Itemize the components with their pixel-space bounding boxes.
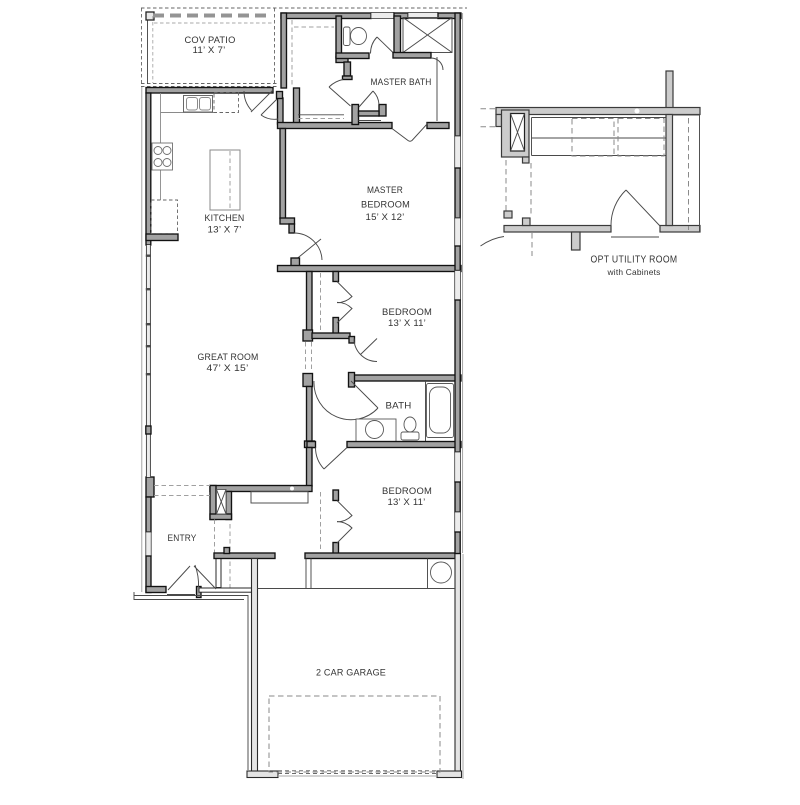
- svg-text:13’ X 7’: 13’ X 7’: [208, 225, 242, 236]
- svg-text:11’ X 7’: 11’ X 7’: [193, 45, 226, 56]
- svg-text:MASTER BATH: MASTER BATH: [371, 77, 432, 88]
- svg-text:BEDROOM: BEDROOM: [382, 486, 432, 497]
- svg-text:15’ X 12’: 15’ X 12’: [366, 212, 405, 223]
- svg-text:GREAT ROOM: GREAT ROOM: [198, 352, 259, 363]
- svg-text:with Cabinets: with Cabinets: [607, 267, 661, 277]
- svg-text:2 CAR GARAGE: 2 CAR GARAGE: [316, 668, 386, 679]
- svg-text:BEDROOM: BEDROOM: [361, 200, 410, 211]
- svg-text:13’ X 11’: 13’ X 11’: [388, 497, 426, 508]
- svg-text:BATH: BATH: [386, 401, 412, 412]
- svg-text:OPT UTILITY ROOM: OPT UTILITY ROOM: [591, 255, 678, 266]
- svg-text:47’ X 15’: 47’ X 15’: [207, 363, 249, 374]
- svg-text:BEDROOM: BEDROOM: [382, 307, 432, 318]
- svg-text:13’ X 11’: 13’ X 11’: [388, 318, 426, 329]
- svg-text:ENTRY: ENTRY: [168, 533, 197, 544]
- svg-text:KITCHEN: KITCHEN: [205, 213, 245, 224]
- svg-text:MASTER: MASTER: [367, 185, 403, 196]
